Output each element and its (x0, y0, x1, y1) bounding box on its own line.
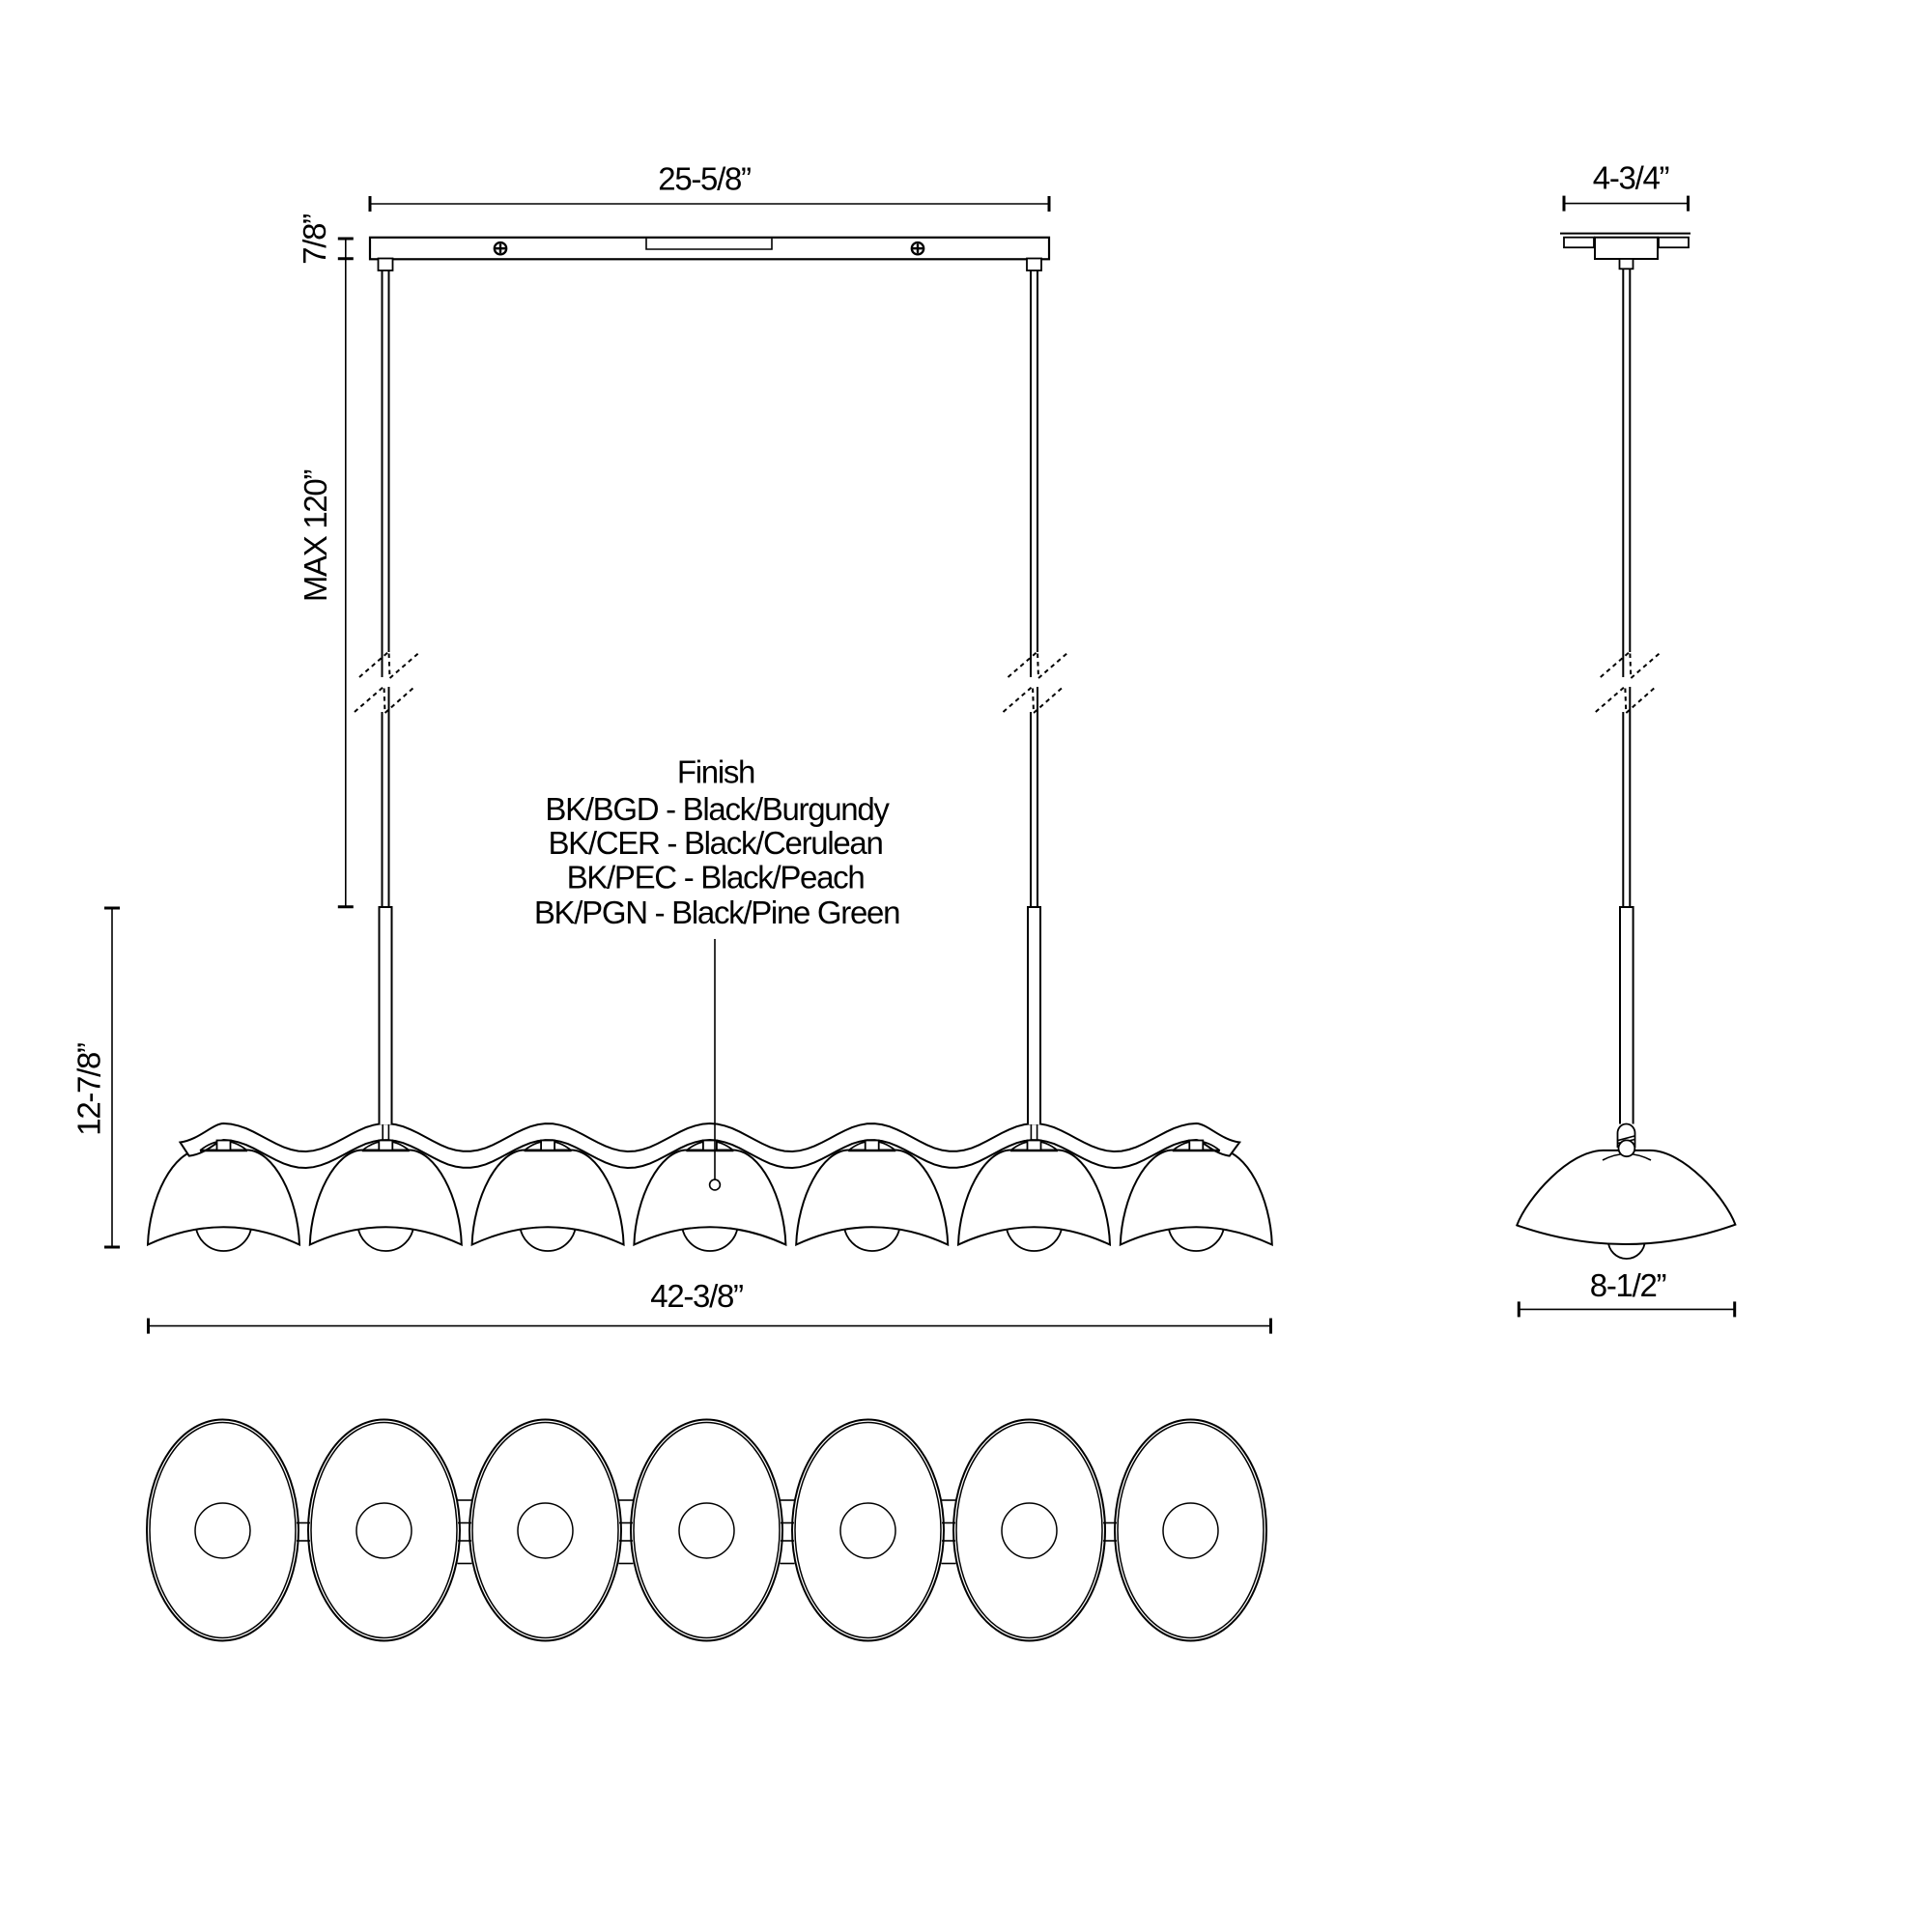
svg-text:8-1/2”: 8-1/2” (1590, 1267, 1666, 1303)
svg-text:25-5/8”: 25-5/8” (658, 161, 751, 197)
svg-text:BK/PEC - Black/Peach: BK/PEC - Black/Peach (567, 860, 865, 895)
svg-text:7/8”: 7/8” (297, 214, 332, 265)
svg-text:12-7/8”: 12-7/8” (71, 1043, 107, 1136)
svg-text:BK/BGD - Black/Burgundy: BK/BGD - Black/Burgundy (545, 791, 890, 827)
svg-text:Finish: Finish (677, 754, 754, 790)
svg-text:MAX 120”: MAX 120” (298, 470, 333, 603)
svg-text:BK/PGN - Black/Pine Green: BK/PGN - Black/Pine Green (534, 895, 899, 930)
svg-text:BK/CER - Black/Cerulean: BK/CER - Black/Cerulean (548, 825, 882, 861)
svg-text:4-3/4”: 4-3/4” (1593, 160, 1669, 196)
svg-text:42-3/8”: 42-3/8” (650, 1278, 743, 1314)
